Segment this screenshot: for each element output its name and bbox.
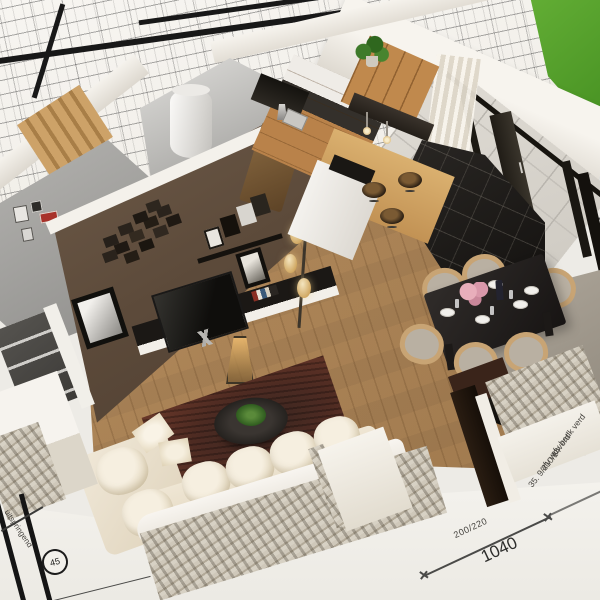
plate: [524, 286, 539, 295]
wine-bottle: [495, 280, 503, 300]
wall-frame: [30, 200, 43, 213]
plate: [440, 308, 455, 317]
circle-label-text: 45: [49, 556, 61, 568]
plate: [475, 315, 490, 324]
bar-stool: [380, 208, 404, 224]
lamp-shade: [284, 254, 297, 273]
wine-glass: [509, 290, 513, 299]
plate: [513, 300, 528, 309]
apartment-render: 200/220 1040 afv badk verd afv wc verd 3…: [0, 0, 600, 600]
bar-stool: [362, 182, 386, 198]
pendant-light: [386, 121, 388, 137]
wine-glass: [490, 306, 494, 315]
dimension-tick: [419, 570, 428, 579]
flower-centerpiece: [458, 282, 492, 306]
plant-pot: [366, 56, 378, 67]
wall-frame: [21, 227, 34, 242]
pendant-light: [366, 112, 368, 128]
wall-frame: [13, 205, 30, 223]
boiler: [170, 88, 212, 158]
table-plant: [236, 404, 266, 426]
dimension-tick: [543, 512, 552, 521]
bar-stool: [398, 172, 422, 188]
throw-pillow: [158, 438, 192, 467]
lamp-shade: [297, 278, 311, 298]
